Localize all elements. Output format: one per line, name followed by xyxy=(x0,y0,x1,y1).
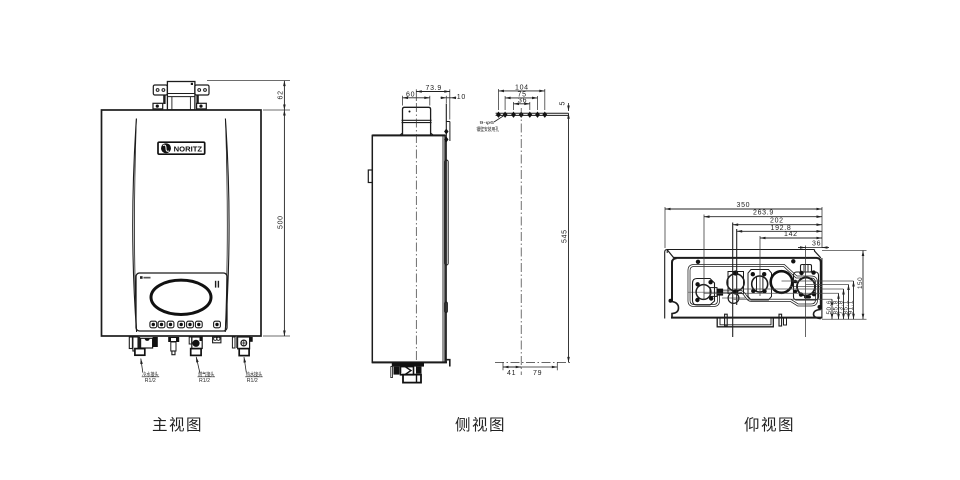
svg-text:60: 60 xyxy=(406,91,415,98)
svg-text:202: 202 xyxy=(770,218,784,225)
svg-text:5: 5 xyxy=(560,101,567,106)
svg-text:仰视图: 仰视图 xyxy=(744,416,795,434)
svg-text:104: 104 xyxy=(515,84,529,91)
svg-text:主视图: 主视图 xyxy=(152,416,203,434)
svg-text:36: 36 xyxy=(812,241,821,248)
svg-text:R1/2: R1/2 xyxy=(247,378,258,384)
svg-text:500: 500 xyxy=(277,215,284,229)
svg-text:73.9: 73.9 xyxy=(426,85,442,92)
svg-text:NORITZ: NORITZ xyxy=(174,144,203,153)
svg-text:62: 62 xyxy=(277,90,284,99)
svg-text:79: 79 xyxy=(533,370,542,377)
svg-text:545: 545 xyxy=(561,229,568,243)
svg-text:镶壁安装用孔: 镶壁安装用孔 xyxy=(477,126,500,133)
svg-text:10: 10 xyxy=(457,94,466,101)
svg-text:36: 36 xyxy=(518,97,527,104)
svg-text:9-φ6: 9-φ6 xyxy=(480,120,495,126)
svg-text:41: 41 xyxy=(507,370,516,377)
svg-text:91.1: 91.1 xyxy=(847,300,854,314)
svg-text:263.9: 263.9 xyxy=(753,210,774,217)
svg-text:350: 350 xyxy=(737,202,751,209)
svg-text:142: 142 xyxy=(784,231,798,238)
svg-text:侧视图: 侧视图 xyxy=(455,416,506,434)
svg-text:R1/2: R1/2 xyxy=(145,378,156,384)
svg-text:150: 150 xyxy=(857,277,864,289)
svg-text:R1/2: R1/2 xyxy=(199,378,210,384)
